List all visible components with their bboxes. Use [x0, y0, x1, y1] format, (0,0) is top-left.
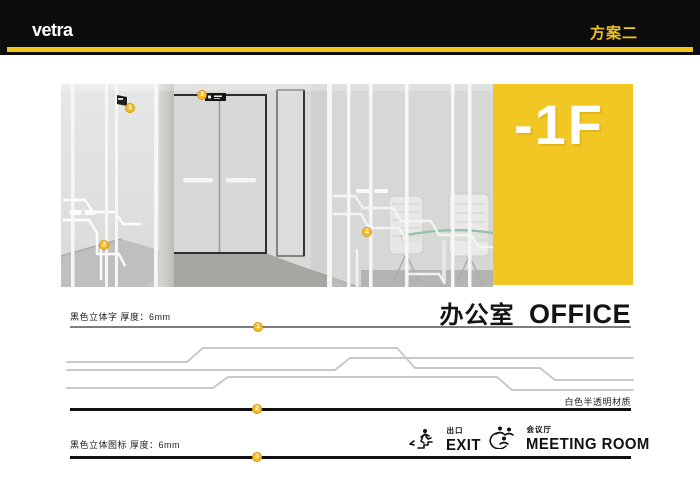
meeting-legend: 会议厅 MEETING ROOM [485, 424, 660, 454]
rule-marker-3: 3 [252, 452, 262, 462]
plan-label: 方案二 [590, 22, 638, 43]
photo-marker-3: 3 [197, 90, 207, 100]
rule-letters [70, 326, 631, 328]
room-title-zh: 办公室 [440, 302, 515, 329]
header-accent-stripe [7, 47, 693, 52]
spec-label-icons: 黑色立体图标 厚度：6mm [70, 438, 180, 451]
room-title: 办公室 OFFICE [440, 295, 631, 330]
exit-label-zh: 出口 [446, 425, 484, 436]
photo-marker-2: 2 [99, 240, 109, 250]
photo-marker-2b: 2 [362, 227, 372, 237]
spec-label-letters: 黑色立体字 厚度：6mm [70, 310, 171, 323]
photo-marker-1: 1 [125, 103, 135, 113]
header-bar: vetra 方案二 [0, 0, 700, 55]
interior-render-photo [61, 84, 493, 287]
exit-legend: 出口 EXIT [408, 425, 484, 455]
rule-icons [70, 456, 631, 459]
interior-render-drawing [61, 84, 493, 287]
meeting-label-en: MEETING ROOM [526, 436, 650, 454]
floor-number-label: -1F [493, 92, 625, 157]
brand-logo: vetra [32, 20, 73, 41]
floor-number-block: -1F [493, 84, 633, 285]
exit-sign-above-door [205, 93, 226, 101]
rule-marker-2: 2 [252, 404, 262, 414]
rule-material [70, 408, 631, 411]
exit-running-man-icon [408, 427, 438, 455]
meeting-room-icon [485, 425, 518, 454]
spec-label-material: 白色半透明材质 [564, 395, 631, 408]
room-title-en: OFFICE [529, 299, 631, 329]
rule-marker-1: 1 [253, 322, 263, 332]
meeting-label-zh: 会议厅 [526, 424, 659, 435]
exit-label-en: EXIT [446, 437, 481, 455]
slide: vetra 方案二 [0, 0, 700, 495]
